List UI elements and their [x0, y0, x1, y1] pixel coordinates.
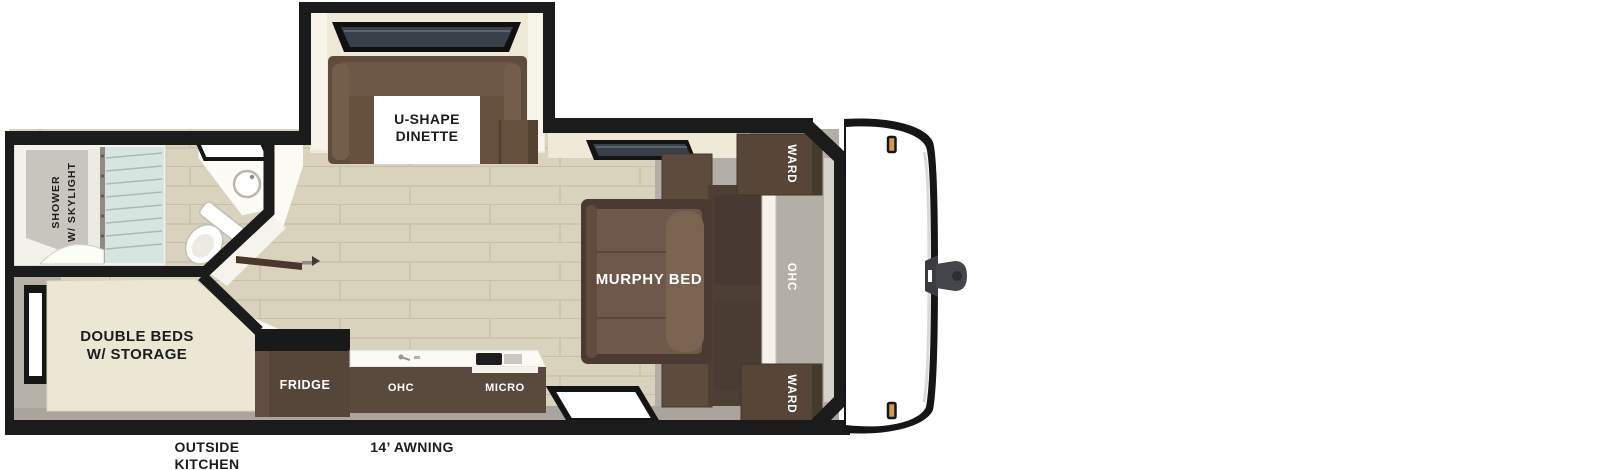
fridge-label: FRIDGE: [280, 378, 331, 392]
wall-slide-right: [543, 2, 555, 133]
kitchen-counter: OHC MICRO: [350, 350, 546, 413]
ward-bottom: WARD: [741, 364, 822, 425]
murphy-bed: MURPHY BED: [581, 199, 712, 364]
marker-light-top: [888, 137, 896, 152]
fridge: FRIDGE: [255, 329, 350, 417]
wall-top-right: [545, 118, 813, 133]
hitch: [925, 255, 967, 297]
wall-slide-left: [299, 2, 311, 145]
double-beds-label-line2: W/ STORAGE: [87, 346, 187, 363]
entry-door-mat: [551, 389, 656, 421]
wall-bath-divider: [9, 266, 209, 277]
double-beds-label-line1: DOUBLE BEDS: [80, 328, 194, 345]
ward-top: WARD: [737, 134, 822, 195]
shower: SHOWER W/ SKYLIGHT: [14, 143, 166, 266]
slide-window: [332, 22, 521, 52]
cooktop: [476, 353, 502, 365]
marker-light-bottom: [888, 403, 896, 418]
front-cap: [844, 118, 967, 433]
microwave-front: [472, 367, 538, 373]
wall-slide-top: [299, 2, 555, 13]
ohc-front-label: OHC: [785, 263, 797, 292]
sink: [234, 171, 260, 197]
awning-label: 14’ AWNING: [370, 439, 454, 455]
bedroom-window-glass: [29, 293, 42, 376]
dinette-label-line1: U-SHAPE: [394, 111, 460, 127]
shower-label-line2: W/ SKYLIGHT: [66, 162, 78, 242]
sink-faucet: [250, 175, 254, 179]
dinette-label-line2: DINETTE: [396, 128, 459, 144]
dinette-side-bench: [481, 120, 538, 164]
micro-label: MICRO: [485, 382, 525, 394]
shower-glass-door: [100, 147, 164, 263]
outside-kitchen-label-line2: KITCHEN: [174, 456, 239, 470]
ohc-kitchen-label: OHC: [388, 382, 414, 394]
ohc-front-cabinet: [762, 187, 776, 368]
murphy-bed-label: MURPHY BED: [596, 271, 703, 288]
wall-bottom: [5, 420, 850, 435]
exterior-labels: OUTSIDE KITCHEN 14’ AWNING: [174, 439, 453, 470]
ward-top-label: WARD: [785, 144, 797, 183]
outside-kitchen-label-line1: OUTSIDE: [174, 439, 239, 455]
bed-cabinet-top: [662, 154, 712, 204]
shower-label-line1: SHOWER: [50, 175, 62, 228]
dinette-slideout: U-SHAPE DINETTE: [310, 8, 545, 164]
rv-floorplan: SHOWER W/ SKYLIGHT DOUBLE BEDS W/: [0, 0, 1600, 470]
wall-left: [5, 131, 14, 435]
floorplan-page: SHOWER W/ SKYLIGHT DOUBLE BEDS W/: [0, 0, 1600, 470]
bed-cabinet-bottom: [662, 357, 712, 407]
ward-bottom-label: WARD: [785, 374, 797, 413]
